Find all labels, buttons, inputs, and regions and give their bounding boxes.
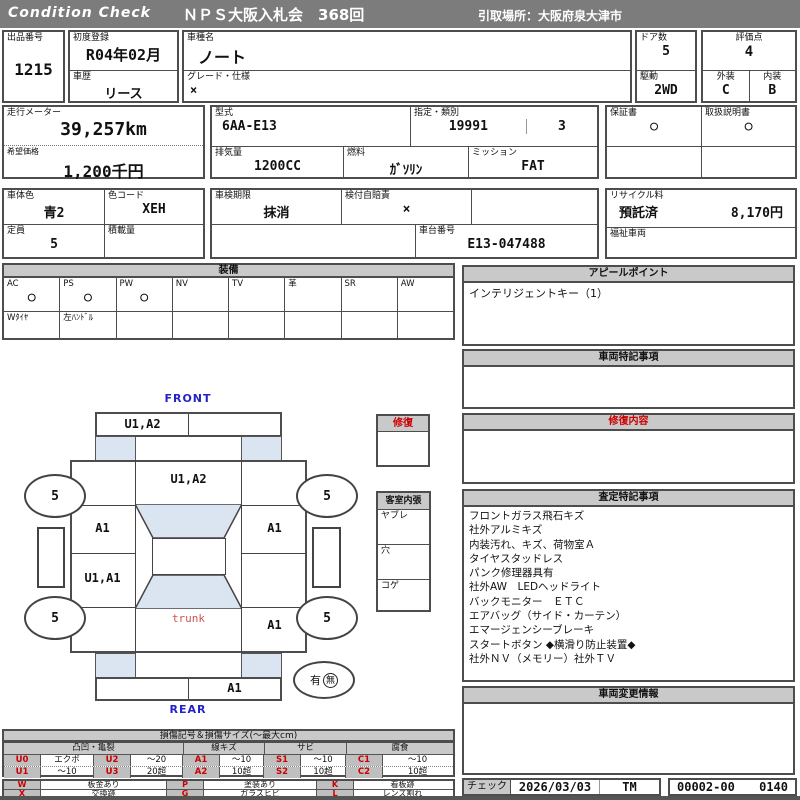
presence-oval: 有 無	[293, 661, 355, 699]
odometer-value: 39,257km	[4, 119, 203, 140]
rear-window	[135, 575, 242, 609]
manual-mark: ○	[702, 119, 795, 134]
front-bumper-left-mark: U1,A2	[97, 414, 189, 435]
presence-no-circled: 無	[323, 673, 338, 688]
legend-desc: 板金あり	[41, 781, 167, 789]
model-code-label: 型式	[212, 107, 410, 119]
legend-desc: 看板跡	[354, 781, 451, 789]
equip-label-wtire: Wﾀｲﾔ	[4, 312, 59, 324]
recycle-fee: 8,170円	[731, 202, 783, 221]
interior-value: B	[750, 83, 796, 98]
wheel-rear-left: 5	[24, 596, 86, 640]
model-code-value: 6AA-E13	[212, 119, 410, 134]
legend-code: S2	[264, 767, 301, 778]
drive-label: 駆動	[637, 71, 695, 83]
interior-row-hole: 穴	[378, 545, 429, 580]
equip-label-pw: PW	[117, 278, 172, 290]
bottom-rule	[0, 796, 800, 800]
interior-row-burn: コゲ	[378, 580, 429, 612]
displacement-label: 排気量	[212, 147, 343, 159]
model-box: 車種名 ノート グレード・仕様 ×	[182, 30, 632, 103]
exterior-value: C	[703, 83, 749, 98]
door-front-right-mark: A1	[242, 521, 307, 535]
legend-code: P	[167, 781, 204, 789]
equip-label-lefthandle: 左ﾊﾝﾄﾞﾙ	[60, 312, 115, 324]
legend-desc: 塗装あり	[204, 781, 317, 789]
door-rear-left-mark: U1,A1	[70, 571, 135, 585]
legend-code: S1	[264, 755, 301, 766]
taillight-left	[95, 653, 136, 678]
welfare-label: 福祉車両	[607, 228, 795, 240]
condition-check-sheet: Condition Check ＮＰＳ大阪入札会 368回 引取場所：大阪府泉大…	[0, 0, 800, 800]
presence-yes: 有	[310, 672, 321, 688]
equip-mark-ac: ○	[4, 290, 59, 305]
legend-code: C2	[346, 767, 383, 778]
price-value: 1,200千円	[4, 158, 203, 182]
doors-value: 5	[637, 44, 695, 59]
rear-label: REAR	[148, 703, 228, 716]
grade-label: グレード・仕様	[184, 71, 630, 83]
score-box: 評価点 4 外装 C 内装 B	[701, 30, 797, 103]
changes-title: 車両変更情報	[464, 688, 793, 704]
mission-value: FAT	[469, 159, 597, 174]
repair-content	[464, 431, 793, 435]
changes-content	[464, 704, 793, 708]
legend-table: 凸凹・亀裂 線キズ サビ 腐食 U0 エクボ U2 ～20 A1 ～10 S1 …	[2, 741, 455, 777]
trunk-label: trunk	[135, 612, 242, 625]
sill-left	[37, 527, 65, 588]
fuel-value: ｶﾞｿﾘﾝ	[344, 159, 468, 178]
legend-code: K	[317, 781, 354, 789]
brand-logo: Condition Check	[8, 5, 151, 21]
assessment-line: エマージェンシーブレーキ	[469, 623, 788, 637]
equip-label-tv: TV	[229, 278, 284, 290]
color-capacity-box: 車体色 青2 色コード XEH 定員 5 積載量	[2, 188, 205, 259]
equip-mark-pw: ○	[117, 290, 172, 305]
serial-number: 0140	[759, 780, 788, 794]
legend-group-scratch: 線キズ	[184, 743, 265, 754]
body-color-value: 青2	[4, 202, 104, 221]
body-color-label: 車体色	[4, 190, 104, 202]
history-value: リース	[70, 83, 177, 102]
equip-label-aw: AW	[398, 278, 453, 290]
legend-size: 10超	[301, 767, 346, 778]
front-bumper: U1,A2	[95, 412, 282, 437]
score-value: 4	[703, 44, 795, 60]
interior-row-tear: ヤブレ	[378, 510, 429, 545]
legend-size: 10超	[220, 767, 264, 778]
assessment-line: 社外ＮＶ（メモリー）社外ＴＶ	[469, 652, 788, 666]
lot-number-box: 出品番号 1215	[2, 30, 65, 103]
repair-mini-box: 修復	[376, 414, 430, 467]
assessment-line: パンク修理器具有	[469, 566, 788, 580]
notes-section: 車両特記事項	[462, 349, 795, 409]
legend-size: 20超	[131, 767, 183, 778]
legend-code: U0	[4, 755, 41, 766]
appeal-content: インテリジェントキー（1）	[464, 283, 793, 303]
recycle-label: リサイクル料	[607, 190, 795, 202]
drive-value: 2WD	[637, 83, 695, 98]
appeal-section: アピールポイント インテリジェントキー（1）	[462, 265, 795, 346]
notes-content	[464, 367, 793, 371]
repair-title: 修復内容	[464, 415, 793, 431]
lot-number-label: 出品番号	[4, 32, 63, 44]
assessment-line: 内装汚れ、キズ、荷物室Ａ	[469, 538, 788, 552]
legend-group-rust: サビ	[265, 743, 347, 754]
legend-code: W	[4, 781, 41, 789]
recycle-welfare-box: リサイクル料 預託済 8,170円 福祉車両	[605, 188, 797, 259]
manual-label: 取扱説明書	[702, 107, 795, 119]
payload-label: 積載量	[105, 225, 203, 237]
windshield	[135, 504, 242, 538]
legend-code: A1	[183, 755, 220, 766]
score-label: 評価点	[703, 32, 795, 44]
warranty-label: 保証書	[607, 107, 701, 119]
legend-size: ～10	[220, 755, 264, 766]
type-class-value2: 3	[527, 119, 597, 134]
equip-mark-ps: ○	[60, 290, 115, 305]
legend-code: U3	[94, 767, 131, 778]
model-label: 車種名	[184, 32, 630, 44]
hood-mark: U1,A2	[135, 472, 242, 486]
history-label: 車歴	[70, 71, 177, 83]
lot-number-value: 1215	[4, 60, 63, 79]
documents-box: 保証書 ○ 取扱説明書 ○	[605, 105, 797, 179]
legend-size: 10超	[383, 767, 452, 778]
equip-label-nv: NV	[173, 278, 228, 290]
odometer-label: 走行メーター	[4, 107, 203, 119]
repair-section: 修復内容	[462, 413, 795, 484]
assessment-line: タイヤスタッドレス	[469, 552, 788, 566]
warranty-mark: ○	[607, 119, 701, 134]
assessment-line: 社外AW LEDヘッドライト	[469, 580, 788, 594]
headlight-left	[95, 436, 136, 461]
assessment-line: 社外アルミキズ	[469, 523, 788, 537]
wheel-front-left: 5	[24, 474, 86, 518]
registration-box: 初度登録 R04年02月 車歴 リース	[68, 30, 179, 103]
interior-lining-box: 客室内張 ヤブレ 穴 コゲ	[376, 491, 431, 612]
jibaiseki-label: 検付自賠責	[342, 190, 471, 202]
rear-bumper: A1	[95, 677, 282, 701]
model-value: ノート	[184, 44, 630, 68]
grade-value: ×	[184, 83, 630, 97]
jibaiseki-value: ×	[342, 202, 471, 217]
chassis-label: 車台番号	[416, 225, 597, 237]
check-box: チェック 2026/03/03 TM	[462, 778, 661, 796]
wheel-front-right: 5	[296, 474, 358, 518]
assessment-list: フロントガラス飛石キズ 社外アルミキズ 内装汚れ、キズ、荷物室Ａ タイヤスタッド…	[464, 507, 793, 668]
legend-group-corrosion: 腐食	[347, 743, 453, 754]
assessment-line: フロントガラス飛石キズ	[469, 509, 788, 523]
inspection-label: 車検期限	[212, 190, 341, 202]
mission-label: ミッション	[469, 147, 597, 159]
legend-group-dent: 凸凹・亀裂	[4, 743, 184, 754]
recycle-status: 預託済	[619, 202, 658, 221]
rear-bumper-right-mark: A1	[189, 679, 280, 699]
engine-box: 型式 6AA-E13 指定・類別 19991 3 排気量 1200CC 燃料 ｶ…	[210, 105, 599, 179]
changes-section: 車両変更情報	[462, 686, 795, 775]
equip-label-ac: AC	[4, 278, 59, 290]
legend-size: エクボ	[41, 755, 94, 766]
color-code-label: 色コード	[105, 190, 203, 202]
color-code-value: XEH	[105, 202, 203, 217]
legend-code: U1	[4, 767, 41, 778]
serial-code: 00002-00	[677, 780, 735, 794]
equip-label-sr: SR	[342, 278, 397, 290]
front-label: FRONT	[148, 392, 228, 405]
legend-size: ～20	[131, 755, 183, 766]
inspection-chassis-box: 車検期限 抹消 検付自賠責 × 車台番号 E13-047488	[210, 188, 599, 259]
fuel-label: 燃料	[344, 147, 468, 159]
doors-label: ドア数	[637, 32, 695, 44]
legend-code: U2	[94, 755, 131, 766]
pickup-location: 引取場所：大阪府泉大津市	[478, 7, 622, 24]
wheel-rear-right: 5	[296, 596, 358, 640]
legend-size: ～10	[41, 767, 94, 778]
legend-size: ～10	[383, 755, 452, 766]
interior-label: 内装	[750, 71, 796, 83]
chassis-value: E13-047488	[416, 237, 597, 252]
header-bar: Condition Check ＮＰＳ大阪入札会 368回 引取場所：大阪府泉大…	[0, 0, 800, 28]
auction-title: ＮＰＳ大阪入札会 368回	[183, 4, 364, 25]
type-class-label: 指定・類別	[411, 107, 597, 119]
first-reg-value: R04年02月	[70, 44, 177, 65]
inspection-value: 抹消	[212, 202, 341, 221]
equipment-grid: AC○ PS○ PW○ NV TV 革 SR AW Wﾀｲﾔ 左ﾊﾝﾄﾞﾙ	[2, 276, 455, 340]
door-front-left-mark: A1	[70, 521, 135, 535]
assessment-line: エアバッグ（サイド・カーテン）	[469, 609, 788, 623]
interior-lining-title: 客室内張	[378, 493, 429, 510]
legend-code: A2	[183, 767, 220, 778]
appeal-title: アピールポイント	[464, 267, 793, 283]
assessment-line: スタートボタン ◆横滑り防止装置◆	[469, 638, 788, 652]
taillight-right	[241, 653, 282, 678]
check-label: チェック	[464, 780, 511, 794]
roof	[152, 538, 226, 575]
check-inspector: TM	[600, 780, 659, 794]
assessment-section: 査定特記事項 フロントガラス飛石キズ 社外アルミキズ 内装汚れ、キズ、荷物室Ａ …	[462, 489, 795, 682]
sill-right	[312, 527, 341, 588]
assessment-line: バックモニター ＥＴＣ	[469, 595, 788, 609]
assessment-title: 査定特記事項	[464, 491, 793, 507]
price-label: 希望価格	[4, 146, 203, 158]
type-class-value1: 19991	[411, 119, 527, 134]
notes-title: 車両特記事項	[464, 351, 793, 367]
odometer-price-box: 走行メーター 39,257km 希望価格 1,200千円	[2, 105, 205, 179]
equip-label-leather: 革	[285, 278, 340, 290]
exterior-label: 外装	[703, 71, 749, 83]
legend-code: C1	[346, 755, 383, 766]
legend-size: ～10	[301, 755, 346, 766]
capacity-label: 定員	[4, 225, 104, 237]
doors-drive-box: ドア数 5 駆動 2WD	[635, 30, 697, 103]
displacement-value: 1200CC	[212, 159, 343, 174]
serial-box: 00002-00 0140	[668, 778, 797, 796]
capacity-value: 5	[4, 237, 104, 252]
headlight-right	[241, 436, 282, 461]
check-date: 2026/03/03	[511, 780, 600, 794]
equip-label-ps: PS	[60, 278, 115, 290]
first-reg-label: 初度登録	[70, 32, 177, 44]
repair-mini-title: 修復	[378, 416, 428, 432]
